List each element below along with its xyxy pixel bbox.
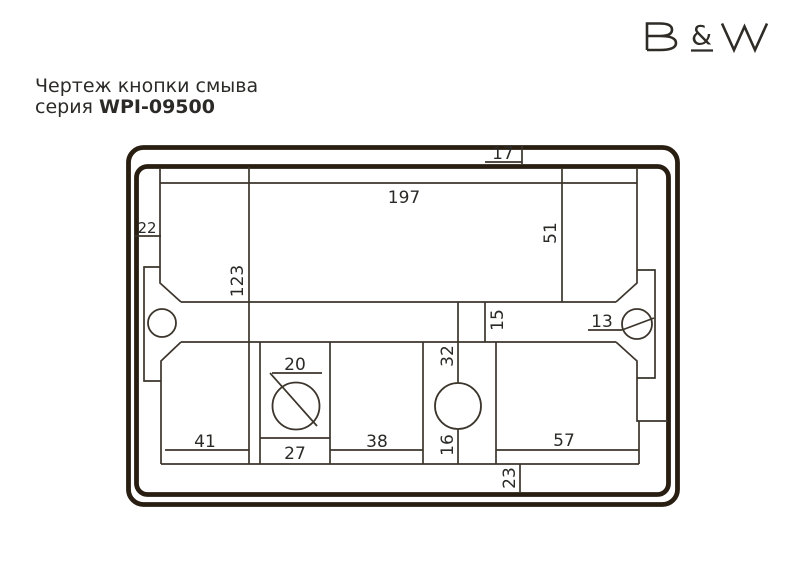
holes	[148, 309, 652, 430]
dim-label-32: 32	[438, 345, 458, 367]
left-button-hole	[273, 383, 320, 430]
dim-label-13: 13	[591, 312, 613, 332]
flush-plate-drawing: &	[0, 0, 800, 566]
dim-label-20: 20	[284, 355, 306, 375]
center-button-hole	[435, 383, 481, 429]
bar-joint-box	[458, 302, 485, 342]
left-mounting-tab	[144, 267, 161, 381]
dim-label-17: 17	[492, 144, 514, 164]
dim-label-16: 16	[438, 434, 458, 456]
left-screw-hole	[148, 309, 176, 337]
drawing-page: Чертеж кнопки смыва серия WPI-09500 &	[0, 0, 800, 566]
dim-leader-13	[622, 318, 654, 330]
right-edge-line	[616, 168, 637, 302]
dim-label-41: 41	[194, 432, 216, 452]
left-edge-line	[160, 168, 181, 302]
logo-ampersand-icon: &	[691, 21, 712, 52]
logo-letter-b	[647, 24, 676, 51]
dim-label-23: 23	[500, 467, 520, 489]
dim-label-15: 15	[488, 309, 508, 331]
dim-label-197: 197	[388, 188, 420, 208]
plate-outline	[144, 168, 668, 464]
dim-label-27: 27	[284, 444, 306, 464]
dim-label-57: 57	[553, 431, 575, 451]
dim-label-51: 51	[541, 222, 561, 244]
dim-label-38: 38	[366, 432, 388, 452]
left-lower-edge	[161, 342, 181, 464]
logo-letter-w	[722, 24, 767, 51]
dim-label-123: 123	[228, 265, 248, 297]
dim-leader-20	[270, 373, 317, 426]
brand-logo: &	[647, 21, 767, 52]
right-lower-edge	[616, 342, 668, 464]
dim-label-22: 22	[137, 219, 156, 237]
dimension-labels: 17 197 22 51 123 15 13 20 32 16 41 27 38…	[137, 144, 612, 489]
